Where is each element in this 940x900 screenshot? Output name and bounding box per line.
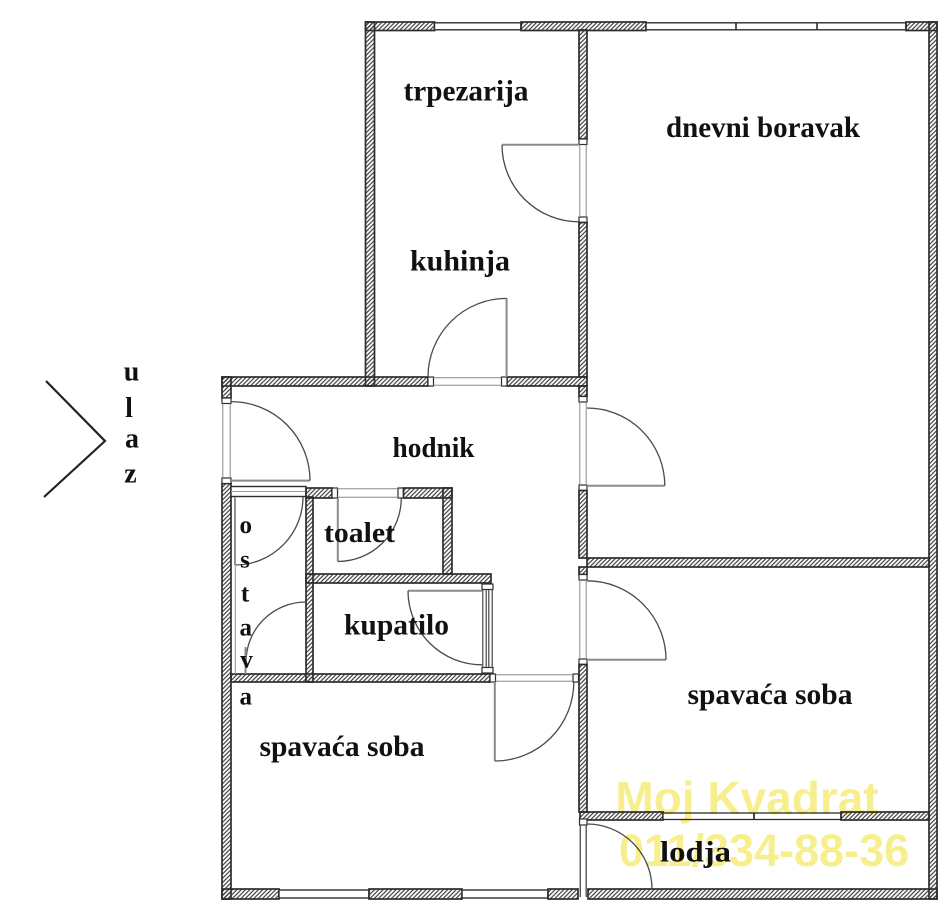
svg-text:z: z xyxy=(124,459,136,490)
svg-text:v: v xyxy=(240,647,253,674)
svg-text:u: u xyxy=(124,357,140,388)
svg-text:spavaća soba: spavaća soba xyxy=(688,679,853,711)
svg-text:a: a xyxy=(240,615,253,642)
svg-text:spavaća soba: spavaća soba xyxy=(260,731,425,763)
svg-text:l: l xyxy=(125,393,133,424)
svg-text:toalet: toalet xyxy=(324,517,395,549)
svg-text:hodnik: hodnik xyxy=(393,433,475,464)
svg-text:011/334-88-36: 011/334-88-36 xyxy=(619,825,909,876)
svg-text:o: o xyxy=(240,512,253,539)
svg-text:kupatilo: kupatilo xyxy=(344,610,449,642)
svg-text:kuhinja: kuhinja xyxy=(410,246,510,278)
svg-text:dnevni boravak: dnevni boravak xyxy=(666,112,861,144)
svg-text:t: t xyxy=(241,581,250,608)
svg-text:Moj Kvadrat: Moj Kvadrat xyxy=(615,772,878,824)
svg-text:a: a xyxy=(125,424,139,455)
svg-text:trpezarija: trpezarija xyxy=(404,76,529,108)
svg-text:s: s xyxy=(240,547,250,574)
svg-text:a: a xyxy=(240,684,253,711)
